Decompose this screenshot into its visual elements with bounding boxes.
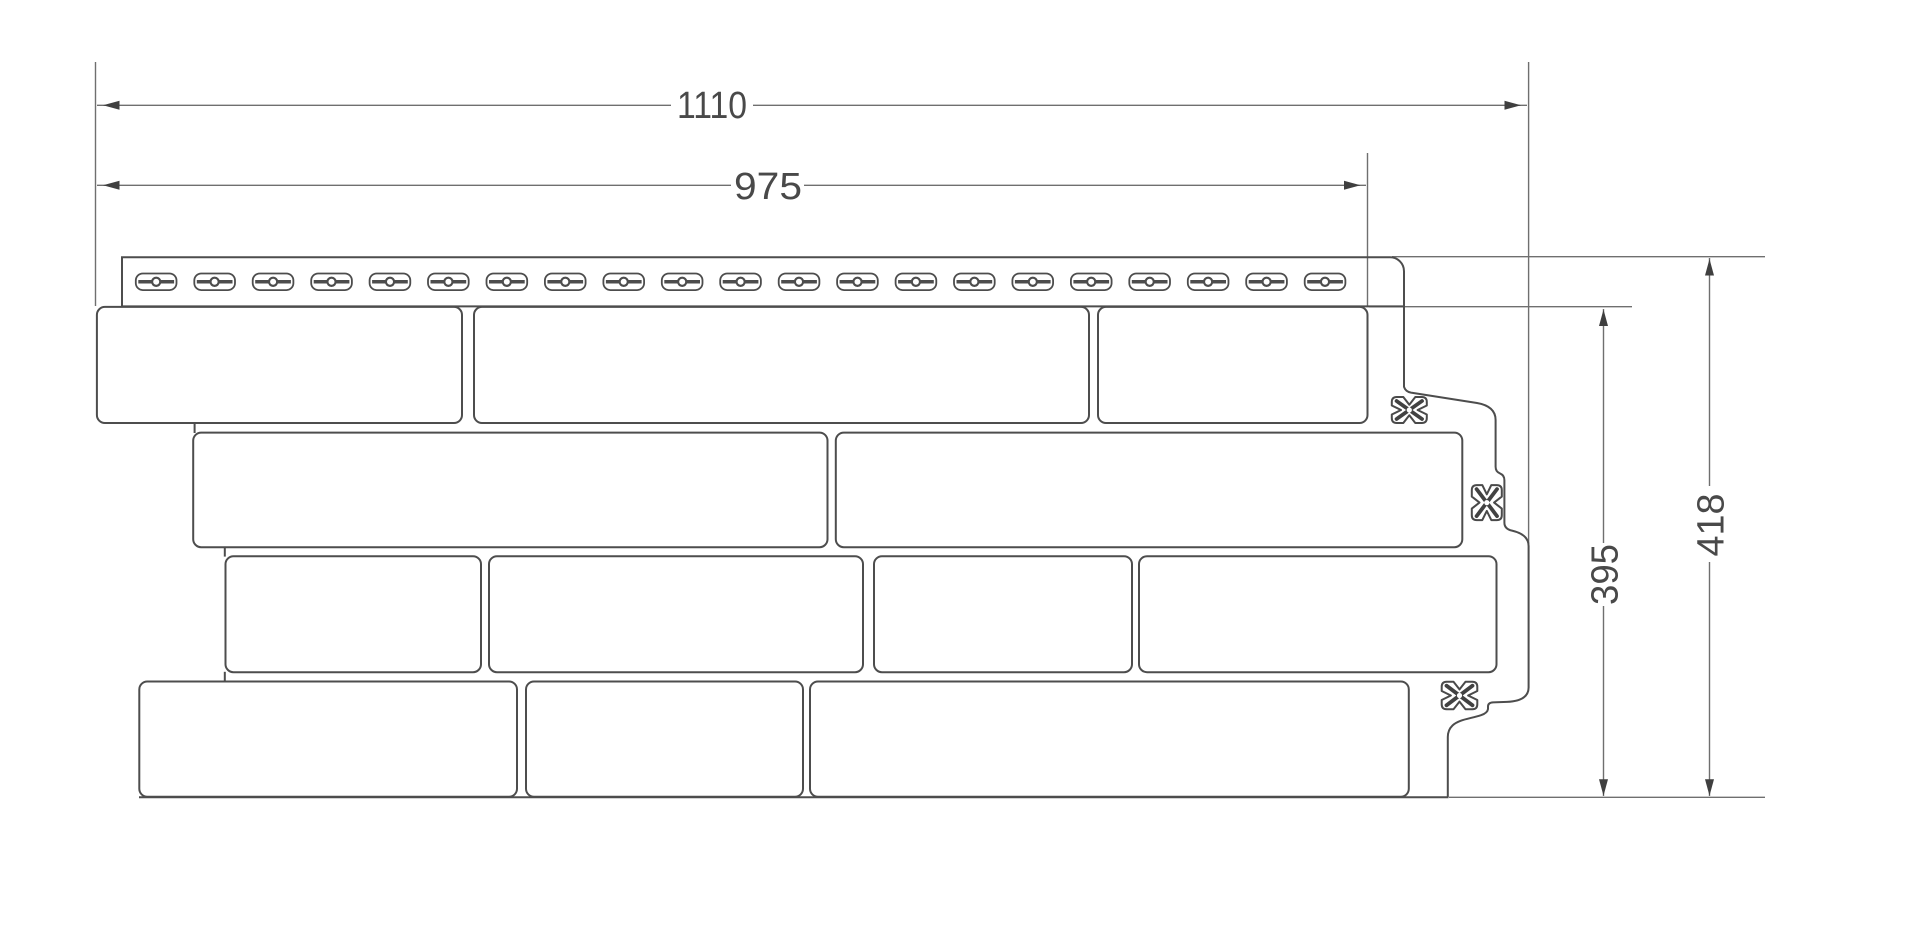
svg-text:418: 418 xyxy=(1690,494,1732,557)
svg-text:975: 975 xyxy=(734,166,802,208)
svg-text:1110: 1110 xyxy=(677,85,747,127)
svg-text:395: 395 xyxy=(1585,544,1627,605)
